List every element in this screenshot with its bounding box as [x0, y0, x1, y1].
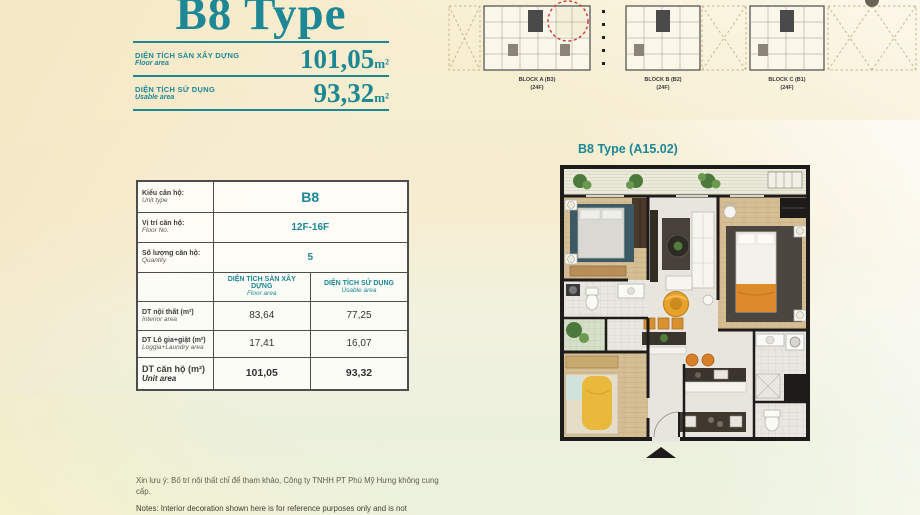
block-b-plan [626, 6, 700, 70]
col-usable-area-en: Usable area [315, 287, 403, 294]
unit-type-header: B8 Type DIỆN TÍCH SÀN XÂY DỰNG Floor are… [133, 0, 389, 111]
usable-area-label-en: Usable area [135, 94, 215, 101]
quantity-label-en: Quantity [142, 257, 209, 264]
unit-spec-table: Kiểu căn hộ: Unit type B8 Vị trí căn hộ:… [136, 180, 409, 391]
interior-usable-area: 77,25 [311, 301, 409, 330]
floor-no-value: 12F-16F [213, 212, 408, 242]
table-row: Vị trí căn hộ: Floor No. 12F-16F [137, 212, 408, 242]
block-b-label: BLOCK B (B2) [644, 77, 681, 83]
unit-area-label-en: Unit area [142, 374, 209, 383]
note-en: Notes: Interior decoration shown here is… [136, 504, 454, 514]
loggia-area-label-vi: DT Lô gia+giặt (m²) [142, 337, 209, 344]
col-usable-area-vi: DIỆN TÍCH SỬ DỤNG [315, 280, 403, 287]
unit-type-value: B8 [213, 181, 408, 212]
balcony-bench [768, 172, 802, 188]
floor-plan-title: B8 Type (A15.02) [578, 142, 678, 156]
block-a-floors: (24F) [530, 85, 543, 91]
block-a-plan [484, 6, 590, 70]
block-c-floors: (24F) [780, 85, 793, 91]
usable-area-row: DIỆN TÍCH SỬ DỤNG Usable area 93,32m² [133, 77, 389, 109]
site-marker-circle [865, 0, 879, 7]
table-row: DT Lô gia+giặt (m²) Loggia+Laundry area … [137, 330, 408, 357]
floor-no-label-en: Floor No. [142, 227, 209, 234]
quantity-label-vi: Số lượng căn hộ: [142, 250, 209, 257]
page-title: B8 Type [133, 0, 389, 41]
col-floor-area-en: Floor area [218, 290, 307, 297]
divider [133, 109, 389, 111]
floor-area-value: 101,05m² [300, 46, 389, 73]
loggia-floor-area: 17,41 [213, 330, 311, 357]
entry-arrow [646, 447, 676, 458]
block-c-label: BLOCK C (B1) [768, 77, 805, 83]
usable-area-label-vi: DIỆN TÍCH SỬ DỤNG [135, 85, 215, 94]
block-a-label: BLOCK A (B3) [519, 77, 556, 83]
unit-area-label-vi: DT căn hộ (m²) [142, 364, 209, 374]
block-b-floors: (24F) [656, 85, 669, 91]
interior-area-label-en: Interior area [142, 316, 209, 323]
table-header-row: DIỆN TÍCH SÀN XÂY DỰNG Floor area DIỆN T… [137, 272, 408, 301]
floor-no-label-vi: Vị trí căn hộ: [142, 220, 209, 227]
site-plan-overview: BLOCK A (B3) (24F) BLOCK B (B2) (24F) BL… [448, 0, 920, 95]
expansion-joint-dots [602, 10, 605, 65]
footnotes: Xin lưu ý: Bố trí nội thất chỉ để tham k… [136, 476, 454, 514]
table-row: Kiểu căn hộ: Unit type B8 [137, 181, 408, 212]
loggia-area-label-en: Loggia+Laundry area [142, 344, 209, 351]
unit-usable-area: 93,32 [311, 357, 409, 390]
floor-area-label-en: Floor area [135, 60, 239, 67]
table-row: DT nội thất (m²) Interior area 83,64 77,… [137, 301, 408, 330]
interior-area-label-vi: DT nội thất (m²) [142, 309, 209, 316]
block-c-plan [750, 6, 824, 70]
table-total-row: DT căn hộ (m²) Unit area 101,05 93,32 [137, 357, 408, 390]
table-row: Số lượng căn hộ: Quantity 5 [137, 242, 408, 272]
unit-floor-area: 101,05 [213, 357, 311, 390]
note-vi: Xin lưu ý: Bố trí nội thất chỉ để tham k… [136, 476, 454, 497]
unit-type-label-en: Unit type [142, 197, 209, 204]
interior-floor-area: 83,64 [213, 301, 311, 330]
bedroom3-furniture [566, 356, 618, 434]
floor-area-label-vi: DIỆN TÍCH SÀN XÂY DỰNG [135, 51, 239, 60]
usable-area-value: 93,32m² [314, 80, 389, 107]
loggia-usable-area: 16,07 [311, 330, 409, 357]
hat-artwork [664, 292, 689, 317]
unit-type-label-vi: Kiểu căn hộ: [142, 190, 209, 197]
col-floor-area-vi: DIỆN TÍCH SÀN XÂY DỰNG [218, 276, 307, 290]
quantity-value: 5 [213, 242, 408, 272]
floor-area-row: DIỆN TÍCH SÀN XÂY DỰNG Floor area 101,05… [133, 43, 389, 75]
unit-floor-plan [558, 160, 812, 460]
